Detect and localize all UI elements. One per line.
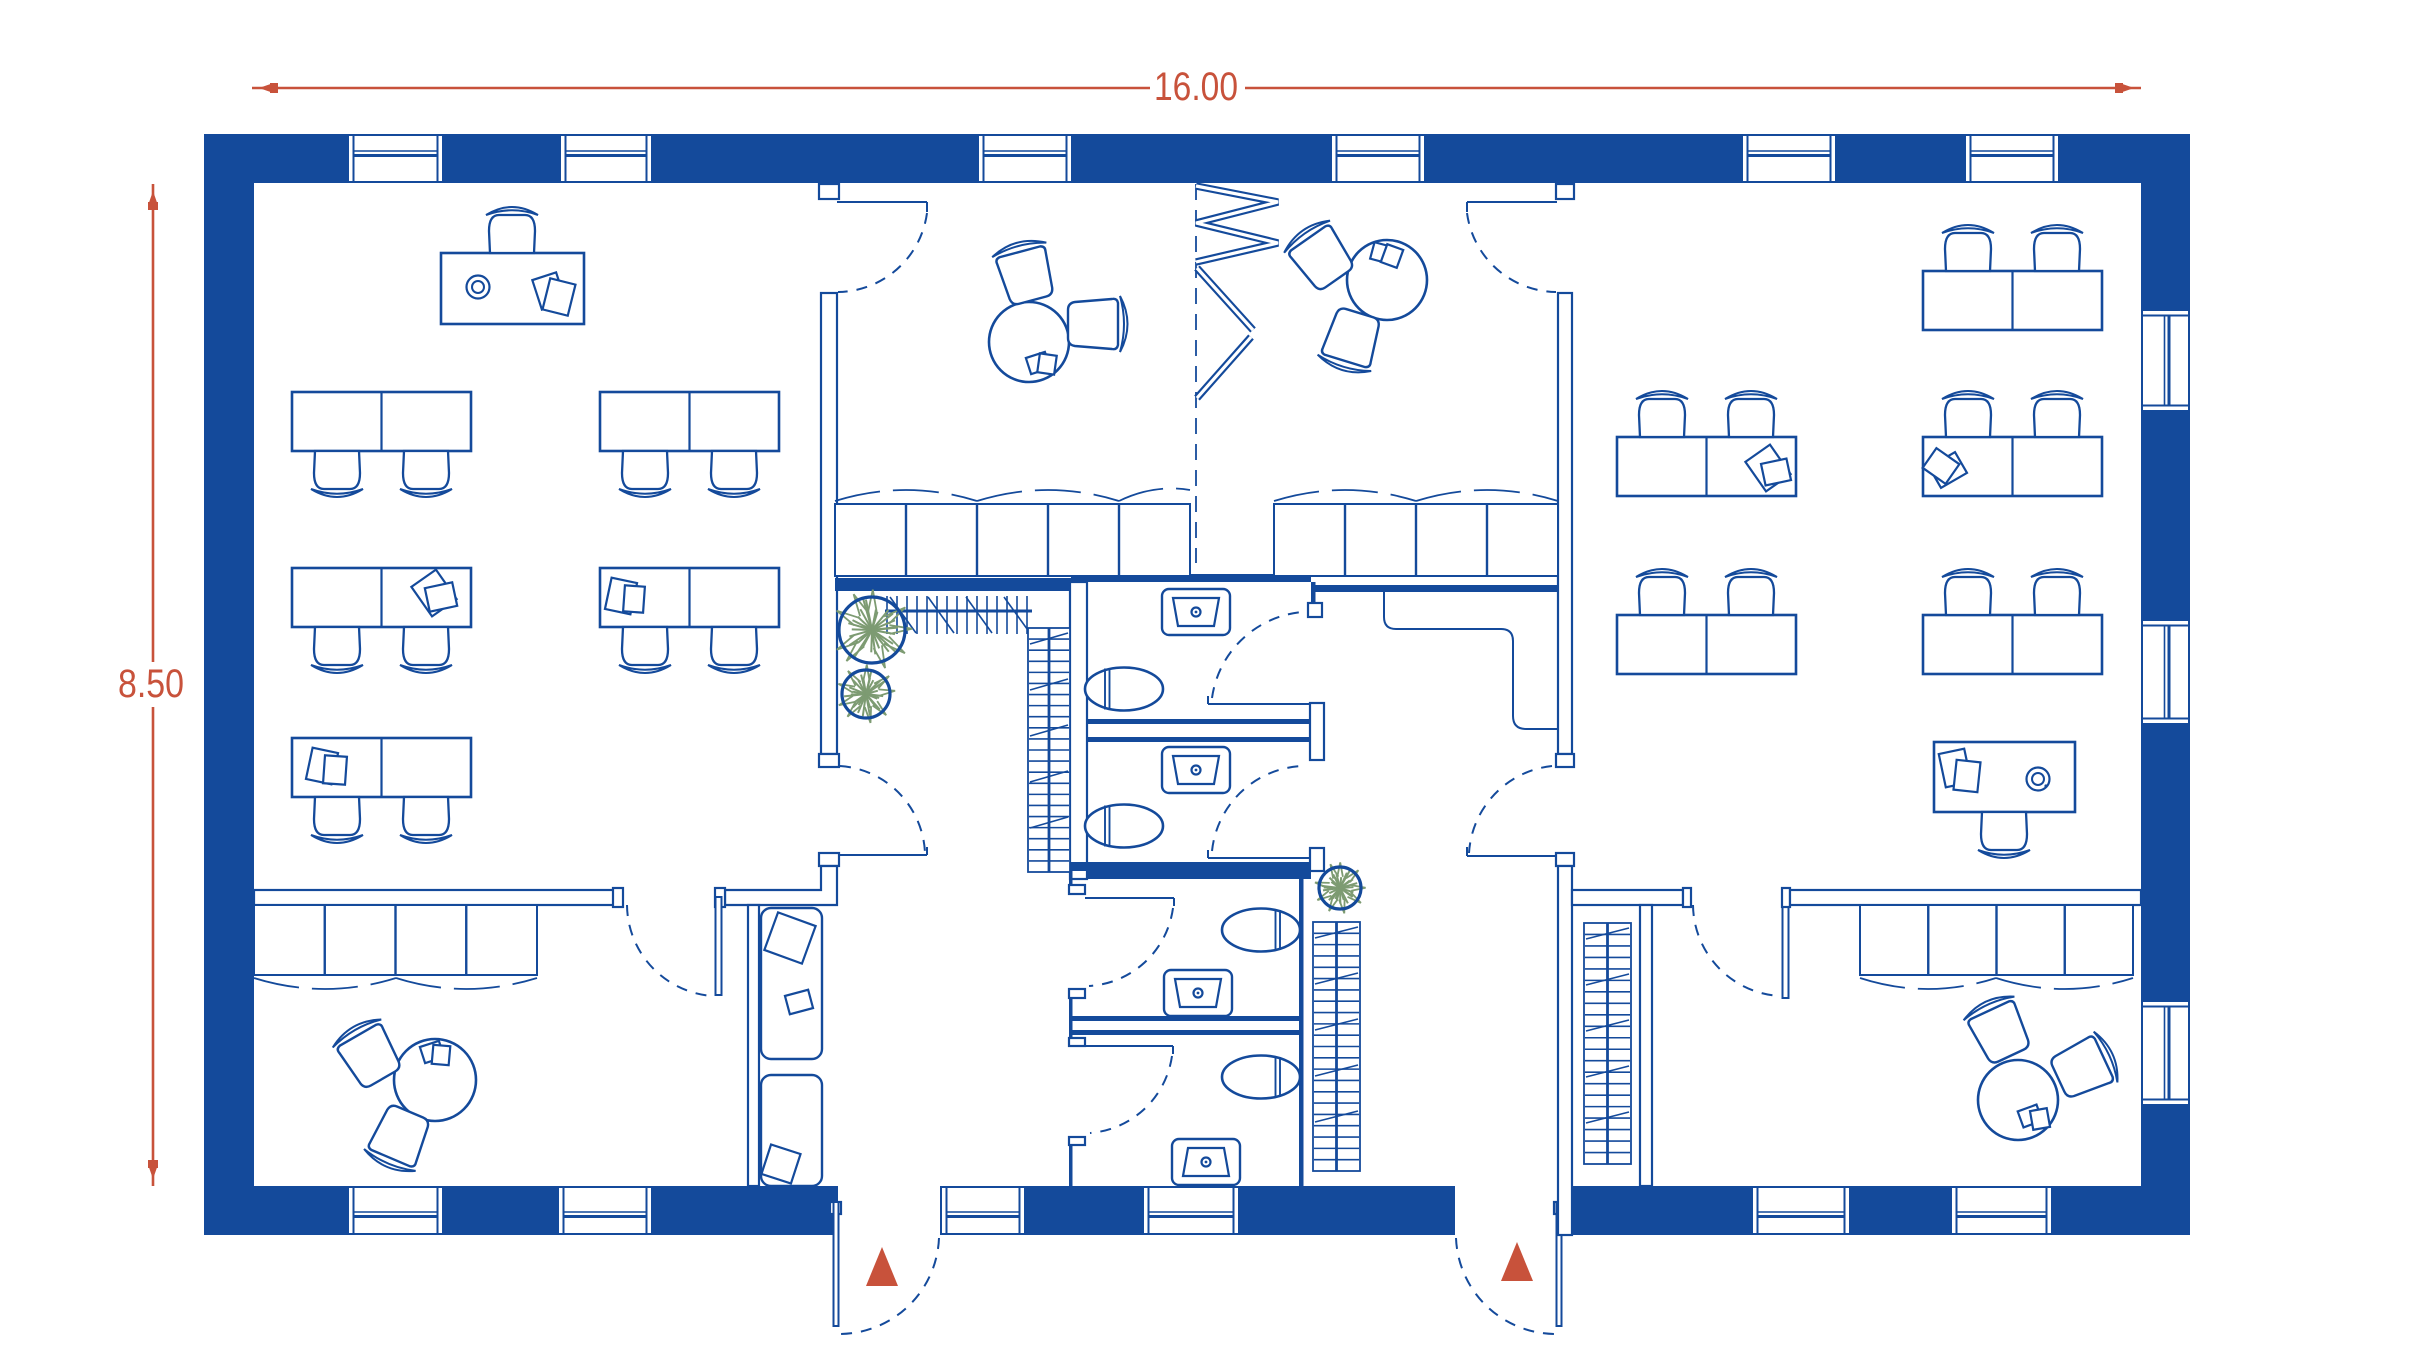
svg-text:8.50: 8.50 xyxy=(118,662,184,706)
svg-text:16.00: 16.00 xyxy=(1154,65,1238,109)
